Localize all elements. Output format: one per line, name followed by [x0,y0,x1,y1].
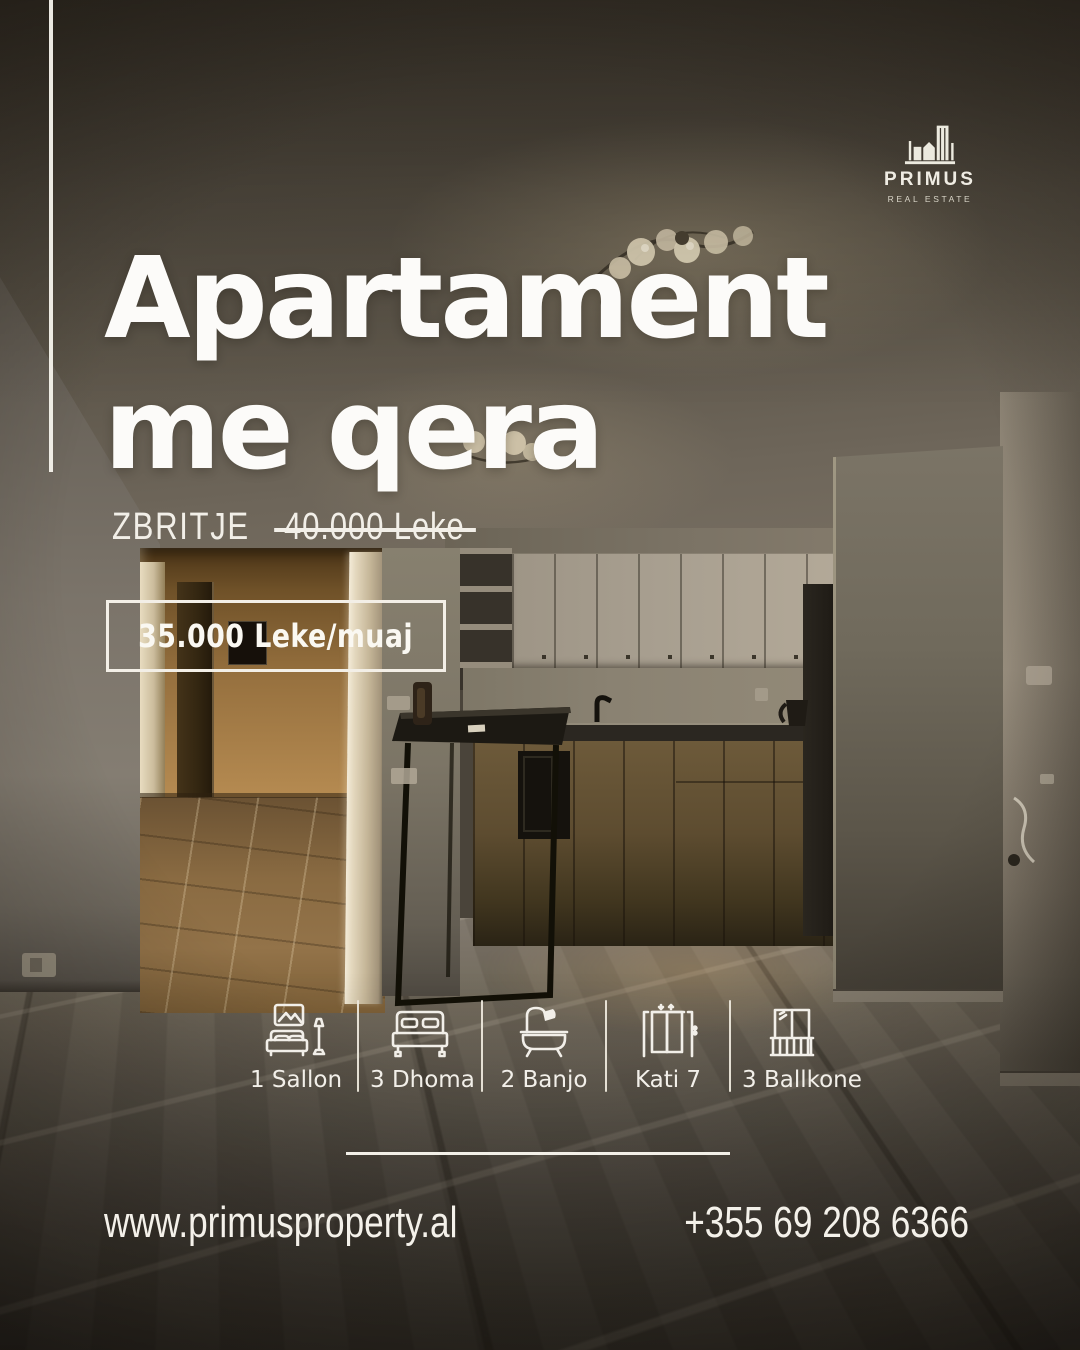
bathtub-icon [494,1000,594,1060]
buildings-icon [901,116,959,168]
feature-bedrooms: 3 Dhoma [370,1000,470,1093]
brand-name: PRIMUS [840,169,1020,191]
old-price-strikethrough: 40.000 Leke [284,506,465,549]
discount-label: ZBRITJE [112,506,250,549]
feature-label: 1 Sallon [246,1067,346,1093]
feature-label: 3 Ballkone [742,1067,842,1093]
price-value: 35.000 Leke/muaj [139,617,414,655]
feature-label: 3 Dhoma [370,1067,470,1093]
feature-divider [357,1000,359,1092]
sofa-icon [246,1000,346,1060]
decorative-vertical-line [49,0,53,472]
apartment-rental-poster: PRIMUS REAL ESTATE Apartament me qera ZB… [0,0,1080,1350]
discount-row: ZBRITJE 40.000 Leke [112,506,504,549]
feature-divider [481,1000,483,1092]
feature-balconies: 3 Ballkone [742,1000,842,1093]
brand-logo: PRIMUS REAL ESTATE [840,116,1020,204]
decorative-horizontal-line [346,1152,730,1155]
website: www.primusproperty.al [104,1198,546,1248]
features-row: 1 Sallon 3 Dhoma [0,1000,1080,1093]
title-line1: Apartament [104,234,827,365]
feature-divider [605,1000,607,1092]
elevator-icon [618,1000,718,1060]
title-line2: me qera [104,365,827,496]
bed-icon [370,1000,470,1060]
poster-title: Apartament me qera [104,234,827,496]
feature-bathrooms: 2 Banjo [494,1000,594,1093]
feature-label: Kati 7 [618,1067,718,1093]
feature-divider [729,1000,731,1092]
feature-label: 2 Banjo [494,1067,594,1093]
feature-floor: Kati 7 [618,1000,718,1093]
feature-living-room: 1 Sallon [246,1000,346,1093]
price-box: 35.000 Leke/muaj [106,600,446,672]
brand-tagline: REAL ESTATE [840,194,1020,204]
balcony-icon [742,1000,842,1060]
phone-number: +355 69 208 6366 [613,1198,969,1248]
